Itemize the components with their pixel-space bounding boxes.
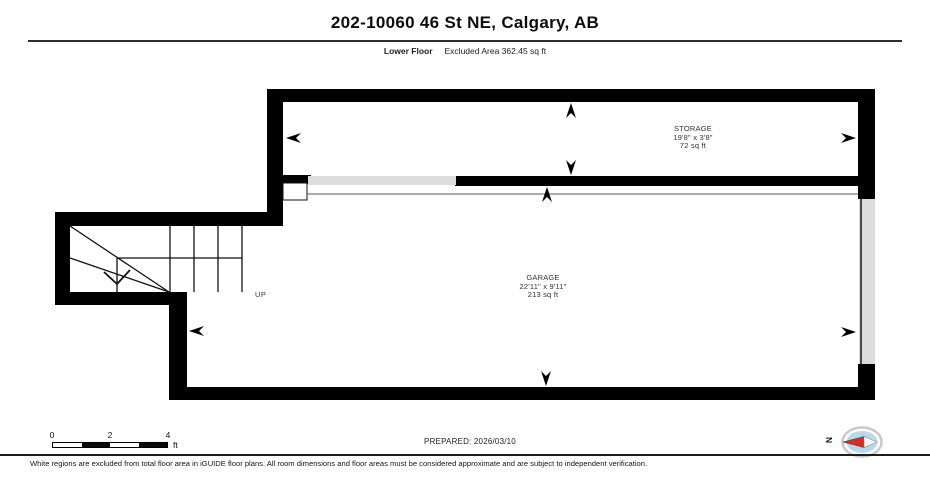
floorplan-page: 202-10060 46 St NE, Calgary, AB Lower Fl… (0, 0, 930, 500)
wall-stair-left (55, 212, 70, 305)
stairs (70, 226, 242, 292)
footer-disclaimer: White regions are excluded from total fl… (30, 459, 910, 468)
dimension-arrow-down-storage (566, 160, 576, 175)
dimension-arrow-up-storage (566, 103, 576, 118)
prepared-date: PREPARED: 2026/03/10 (370, 437, 570, 446)
excluded-wall-band (308, 176, 456, 185)
scale-segment (82, 443, 111, 447)
wall-storage-garage-divider (455, 176, 875, 186)
scale-tick-label: 0 (46, 430, 58, 440)
footer-divider (0, 454, 930, 456)
scale-segment (139, 443, 168, 447)
garage-door (859, 199, 875, 364)
scale-segment (53, 443, 82, 447)
stairs-up-label: UP (255, 290, 266, 299)
room-name: GARAGE (483, 274, 603, 282)
room-area: 213 sq ft (483, 291, 603, 299)
dimension-arrow-left-storage (286, 133, 301, 143)
wall-right-lower (858, 364, 875, 400)
dimension-arrow-right-garage (841, 327, 856, 337)
dimension-arrows (189, 103, 856, 386)
room-name: STORAGE (633, 125, 753, 133)
scale-unit-label: ft (173, 440, 178, 450)
wall-garage-left (169, 292, 187, 400)
room-label-storage: STORAGE 19'8" x 3'8" 72 sq ft (633, 125, 753, 150)
wall-left-upper (267, 89, 283, 226)
dimension-arrow-right-storage (841, 133, 856, 143)
floorplan-drawing (0, 0, 930, 500)
scale-bar-segments (52, 442, 168, 448)
wall-bottom (169, 387, 875, 400)
wall-stair-bottom (55, 292, 187, 305)
dimension-arrow-down-garage (541, 371, 551, 386)
dimension-arrow-left-garage (189, 326, 204, 336)
stair-winder-line (70, 258, 169, 292)
room-label-garage: GARAGE 22'11" x 9'11" 213 sq ft (483, 274, 603, 299)
scale-segment (110, 443, 139, 447)
north-label: N (824, 437, 834, 443)
room-area: 72 sq ft (633, 142, 753, 150)
scale-tick-label: 4 (162, 430, 174, 440)
door-opening-box (283, 183, 307, 200)
wall-stair-top (55, 212, 283, 226)
wall-top (267, 89, 875, 102)
scale-tick-label: 2 (104, 430, 116, 440)
